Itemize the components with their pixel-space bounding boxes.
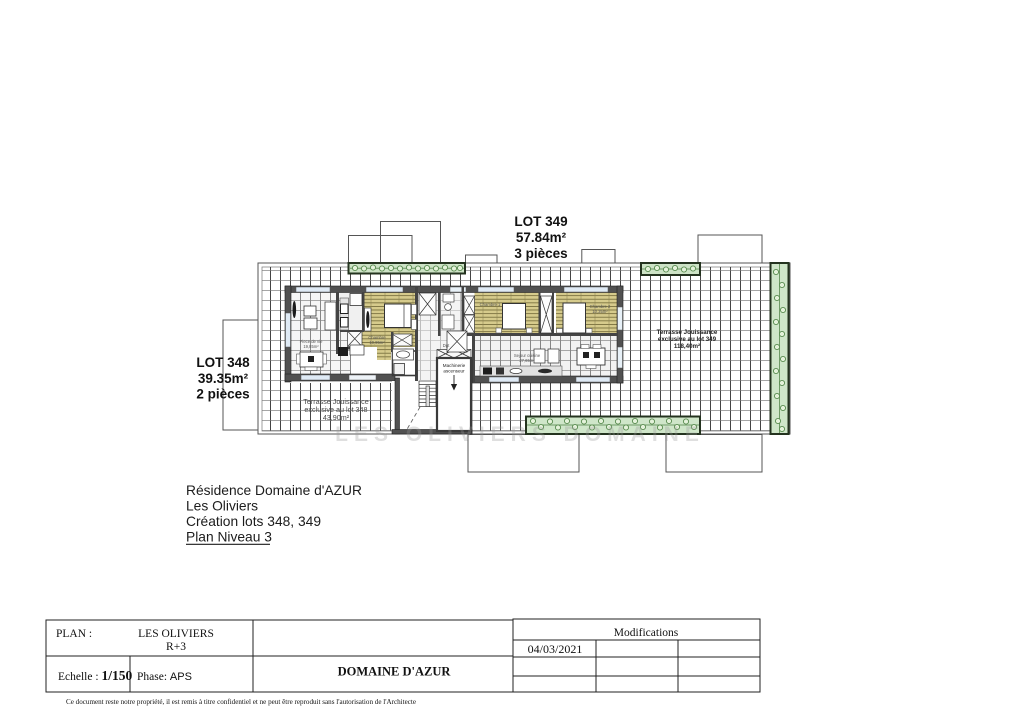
svg-text:Résidence Domaine d'AZUR: Résidence Domaine d'AZUR [186,483,362,498]
svg-text:exclusive au lot 349: exclusive au lot 349 [658,336,717,343]
svg-text:27,65m²: 27,65m² [519,358,535,363]
svg-text:Modifications: Modifications [614,627,679,639]
svg-text:118,40m²: 118,40m² [674,343,700,350]
svg-text:LOT 349: LOT 349 [514,214,567,229]
svg-text:Chambre 1: Chambre 1 [480,302,501,307]
svg-text:DOMAINE D'AZUR: DOMAINE D'AZUR [338,665,452,679]
svg-text:Les Oliviers: Les Oliviers [186,499,258,514]
svg-text:LES OLIVIERS DOMAINE: LES OLIVIERS DOMAINE [335,423,705,446]
svg-text:R+3: R+3 [166,641,186,653]
svg-text:2 pièces: 2 pièces [196,387,249,402]
svg-text:43,90m²: 43,90m² [323,413,350,422]
svg-text:3 pièces: 3 pièces [514,246,567,261]
svg-text:19,85m²: 19,85m² [303,344,319,349]
svg-text:Terrasse Jouissance: Terrasse Jouissance [657,329,718,336]
svg-text:10,95m²: 10,95m² [369,340,385,345]
svg-text:Plan Niveau 3: Plan Niveau 3 [186,530,272,545]
svg-text:Ce document reste notre propri: Ce document reste notre propriété, il es… [66,698,416,706]
svg-text:ascenseur: ascenseur [443,369,465,374]
svg-text:39.35m²: 39.35m² [198,371,249,386]
svg-text:57.84m²: 57.84m² [516,230,567,245]
svg-text:Phase: APS: Phase: APS [137,671,192,683]
svg-text:10,35m²: 10,35m² [592,309,608,314]
svg-text:Echelle : 1/150: Echelle : 1/150 [58,668,132,683]
svg-text:LES OLIVIERS: LES OLIVIERS [138,628,214,640]
svg-text:Dgt: Dgt [443,343,450,348]
svg-text:04/03/2021: 04/03/2021 [528,642,583,656]
svg-text:Création lots 348, 349: Création lots 348, 349 [186,514,321,529]
svg-text:PLAN :: PLAN : [56,628,92,640]
svg-text:LOT 348: LOT 348 [196,355,250,370]
svg-text:Machinerie: Machinerie [443,363,466,368]
